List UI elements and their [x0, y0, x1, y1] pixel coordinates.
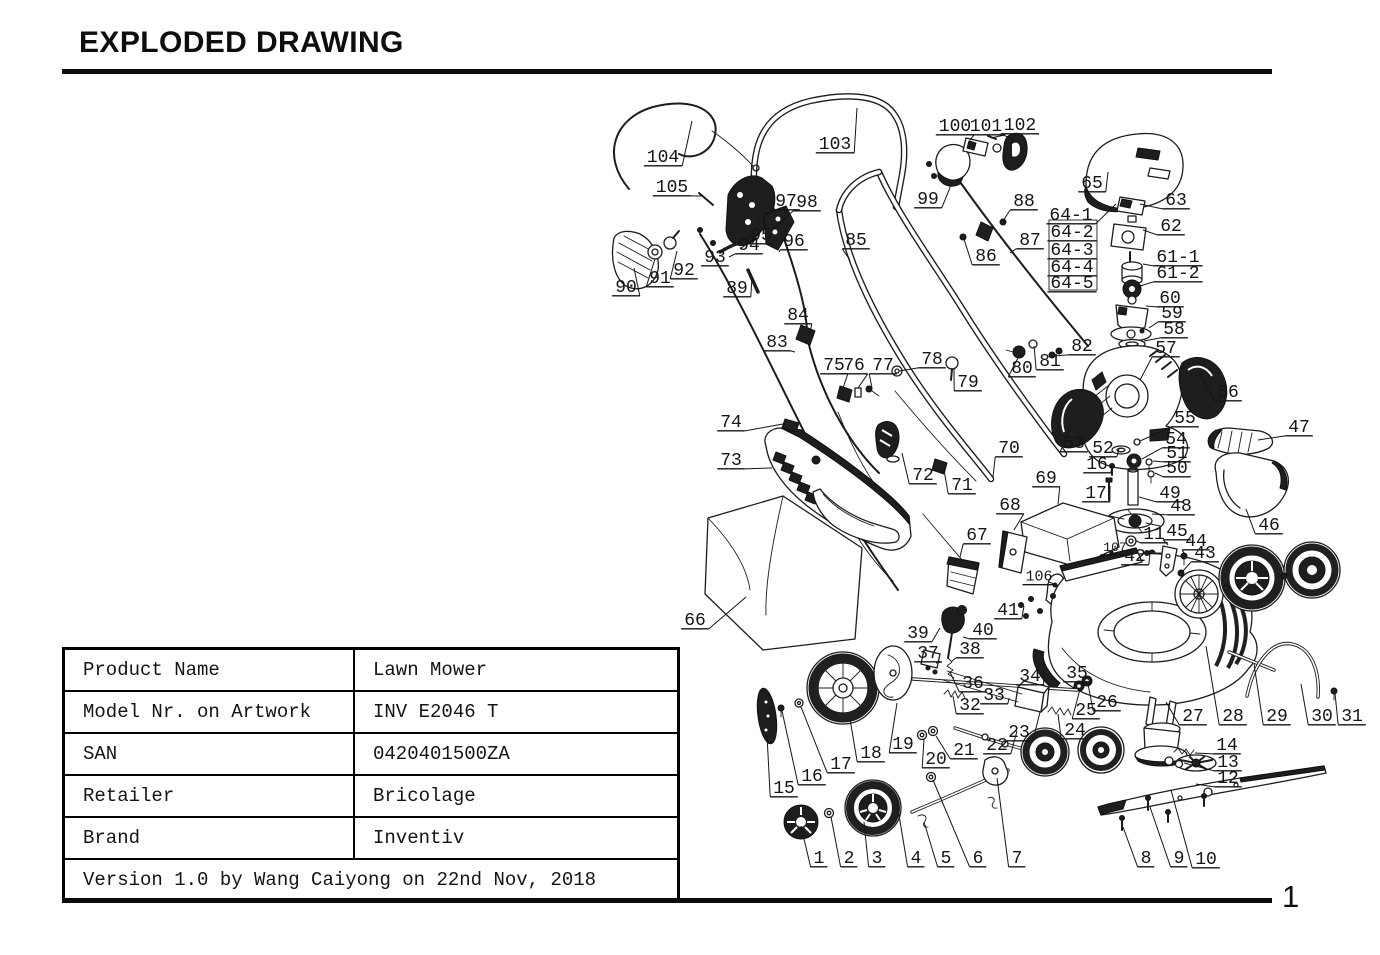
part-label-15: 15	[767, 735, 798, 799]
part-label-58: 58	[1144, 320, 1188, 341]
table-row: Brand Inventiv	[65, 816, 677, 858]
page-number: 1	[1282, 879, 1299, 915]
part-label-7: 7	[997, 778, 1025, 869]
svg-text:31: 31	[1341, 707, 1363, 727]
svg-text:16: 16	[1086, 455, 1108, 475]
svg-text:11: 11	[1143, 525, 1165, 545]
svg-text:48: 48	[1170, 497, 1192, 517]
part-label-31: 31	[1335, 693, 1366, 727]
blade-shapes	[1098, 697, 1326, 830]
svg-text:43: 43	[1194, 544, 1216, 564]
svg-text:77: 77	[872, 356, 894, 376]
svg-text:5: 5	[941, 849, 952, 869]
product-info-table: Product Name Lawn Mower Model Nr. on Art…	[62, 647, 680, 903]
part-label-5: 5	[924, 822, 954, 869]
part-label-71: 71	[944, 470, 976, 496]
svg-text:64-5: 64-5	[1050, 274, 1093, 294]
svg-text:92: 92	[673, 261, 695, 281]
table-row: Retailer Bricolage	[65, 774, 677, 816]
svg-text:35: 35	[1066, 664, 1088, 684]
svg-text:94: 94	[738, 236, 760, 256]
part-label-88: 88	[1003, 192, 1038, 221]
part-label-96: 96	[779, 232, 808, 252]
svg-text:83: 83	[766, 333, 788, 353]
left-wheel-shapes	[754, 646, 937, 745]
svg-text:101: 101	[970, 117, 1002, 137]
svg-text:6: 6	[973, 849, 984, 869]
svg-text:16: 16	[801, 767, 823, 787]
part-label-85: 85	[842, 231, 870, 260]
svg-text:71: 71	[951, 476, 973, 496]
svg-text:75: 75	[823, 356, 845, 376]
part-label-33: 33	[980, 686, 1009, 706]
svg-text:97: 97	[775, 192, 797, 212]
table-footer-row: Version 1.0 by Wang Caiyong on 22nd Nov,…	[65, 858, 677, 900]
svg-text:18: 18	[860, 744, 882, 764]
part-label-83: 83	[763, 333, 795, 353]
part-label-39: 39	[904, 624, 940, 644]
part-label-106: 106	[1023, 569, 1056, 586]
table-row: Model Nr. on Artwork INV E2046 T	[65, 690, 677, 732]
svg-text:23: 23	[1008, 723, 1030, 743]
svg-text:87: 87	[1019, 231, 1041, 251]
svg-text:34: 34	[1019, 667, 1041, 687]
part-label-67: 67	[960, 526, 991, 557]
svg-text:70: 70	[998, 439, 1020, 459]
svg-text:66: 66	[684, 611, 706, 631]
svg-text:37: 37	[917, 644, 939, 664]
svg-text:27: 27	[1182, 707, 1204, 727]
part-label-61-2: 61-2	[1137, 264, 1203, 287]
part-label-35: 35	[1063, 664, 1091, 684]
svg-text:85: 85	[845, 231, 867, 251]
svg-text:28: 28	[1222, 707, 1244, 727]
svg-text:46: 46	[1258, 516, 1280, 536]
svg-text:19: 19	[892, 735, 914, 755]
part-label-8: 8	[1123, 827, 1154, 869]
svg-text:26: 26	[1096, 693, 1118, 713]
svg-text:29: 29	[1266, 707, 1288, 727]
svg-text:69: 69	[1035, 469, 1057, 489]
table-row: SAN 0420401500ZA	[65, 732, 677, 774]
svg-text:84: 84	[787, 306, 809, 326]
part-label-100: 100	[936, 117, 974, 140]
part-label-20: 20	[922, 739, 950, 770]
part-label-38: 38	[952, 640, 984, 661]
part-label-89: 89	[723, 277, 752, 299]
svg-text:76: 76	[843, 356, 865, 376]
part-label-99: 99	[914, 185, 951, 210]
svg-text:55: 55	[1174, 409, 1196, 429]
svg-text:3: 3	[872, 849, 883, 869]
svg-text:79: 79	[957, 373, 979, 393]
svg-text:88: 88	[1013, 192, 1035, 212]
svg-text:9: 9	[1174, 849, 1185, 869]
svg-text:103: 103	[819, 135, 851, 155]
svg-text:74: 74	[720, 413, 742, 433]
part-label-18: 18	[850, 719, 885, 764]
svg-text:33: 33	[983, 686, 1005, 706]
svg-text:62: 62	[1160, 217, 1182, 237]
row-value: INV E2046 T	[355, 692, 677, 732]
svg-text:21: 21	[953, 741, 975, 761]
svg-text:99: 99	[917, 190, 939, 210]
svg-text:82: 82	[1071, 337, 1093, 357]
switch-housing-shapes	[927, 133, 1028, 186]
row-label: Retailer	[65, 776, 355, 816]
svg-text:98: 98	[796, 193, 818, 213]
svg-text:56: 56	[1217, 383, 1239, 403]
svg-text:72: 72	[912, 466, 934, 486]
part-label-103: 103	[816, 108, 857, 155]
part-label-16: 16	[782, 711, 826, 787]
svg-text:104: 104	[647, 148, 679, 168]
svg-text:73: 73	[720, 451, 742, 471]
svg-text:32: 32	[959, 696, 981, 716]
lower-handle-shape	[839, 172, 1064, 479]
svg-text:67: 67	[966, 526, 988, 546]
row-value: Bricolage	[355, 776, 677, 816]
svg-text:81: 81	[1039, 352, 1061, 372]
svg-text:2: 2	[844, 849, 855, 869]
part-label-19: 19	[889, 703, 917, 755]
svg-text:24: 24	[1064, 721, 1086, 741]
svg-text:7: 7	[1012, 849, 1023, 869]
svg-text:40: 40	[972, 621, 994, 641]
svg-text:80: 80	[1011, 359, 1033, 379]
row-label: SAN	[65, 734, 355, 774]
title-rule	[62, 69, 1272, 74]
svg-text:93: 93	[704, 248, 726, 268]
svg-text:15: 15	[773, 779, 795, 799]
svg-text:30: 30	[1311, 707, 1333, 727]
part-label-68: 68	[996, 496, 1024, 530]
right-cover-shapes	[1208, 428, 1288, 517]
svg-text:107: 107	[1103, 540, 1126, 555]
svg-text:42: 42	[1124, 547, 1146, 567]
svg-text:90: 90	[615, 278, 637, 298]
svg-text:68: 68	[999, 496, 1021, 516]
row-value: Inventiv	[355, 818, 677, 858]
svg-text:47: 47	[1288, 418, 1310, 438]
svg-text:8: 8	[1141, 849, 1152, 869]
part-label-107: 107	[1100, 540, 1129, 555]
part-label-72: 72	[902, 453, 937, 486]
svg-text:25: 25	[1075, 701, 1097, 721]
part-label-105: 105	[653, 178, 703, 198]
svg-text:105: 105	[656, 178, 688, 198]
svg-text:100: 100	[939, 117, 971, 137]
part-label-62: 62	[1143, 217, 1185, 237]
part-label-29: 29	[1254, 664, 1291, 727]
svg-text:36: 36	[962, 674, 984, 694]
svg-text:12: 12	[1217, 769, 1239, 789]
svg-text:96: 96	[783, 232, 805, 252]
svg-text:58: 58	[1163, 320, 1185, 340]
part-label-77: 77	[869, 356, 897, 388]
part-label-87: 87	[1010, 231, 1044, 253]
part-label-40: 40	[963, 621, 997, 641]
svg-text:57: 57	[1155, 339, 1177, 359]
part-label-69: 69	[1032, 469, 1060, 504]
part-label-37: 37	[914, 644, 942, 664]
svg-text:39: 39	[907, 624, 929, 644]
table-row: Product Name Lawn Mower	[65, 650, 677, 690]
svg-text:50: 50	[1166, 459, 1188, 479]
svg-text:17: 17	[830, 755, 852, 775]
row-label: Brand	[65, 818, 355, 858]
part-label-79: 79	[954, 368, 982, 393]
svg-text:63: 63	[1165, 191, 1187, 211]
part-label-36: 36	[950, 672, 987, 694]
svg-text:65: 65	[1081, 174, 1103, 194]
part-label-17: 17	[1082, 484, 1110, 504]
row-value: Lawn Mower	[355, 650, 677, 690]
svg-text:10: 10	[1195, 850, 1217, 870]
svg-text:17: 17	[1085, 484, 1107, 504]
svg-text:1: 1	[814, 849, 825, 869]
part-label-64-2: 64-2	[1047, 223, 1096, 243]
part-label-70: 70	[993, 439, 1023, 477]
svg-text:91: 91	[649, 269, 671, 289]
svg-text:38: 38	[959, 640, 981, 660]
part-label-64-5: 64-5	[1047, 274, 1096, 294]
svg-text:20: 20	[925, 750, 947, 770]
part-label-32: 32	[953, 696, 984, 716]
svg-text:41: 41	[997, 601, 1019, 621]
svg-text:22: 22	[986, 736, 1008, 756]
svg-text:89: 89	[726, 279, 748, 299]
svg-text:106: 106	[1025, 569, 1052, 586]
part-label-93: 93	[701, 248, 729, 268]
page-title: EXPLODED DRAWING	[79, 26, 404, 60]
part-label-92: 92	[670, 251, 698, 281]
svg-text:86: 86	[975, 247, 997, 267]
part-label-104: 104	[644, 121, 692, 168]
row-label: Model Nr. on Artwork	[65, 692, 355, 732]
svg-text:61-2: 61-2	[1156, 264, 1199, 284]
svg-text:4: 4	[911, 849, 922, 869]
row-value: 0420401500ZA	[355, 734, 677, 774]
part-label-73: 73	[717, 451, 772, 471]
row-label: Product Name	[65, 650, 355, 690]
part-label-101: 101	[967, 117, 1005, 138]
part-label-86: 86	[964, 239, 1000, 267]
part-label-16: 16	[1083, 455, 1112, 475]
svg-text:78: 78	[921, 350, 943, 370]
footer-rule	[62, 898, 1272, 903]
svg-text:64-2: 64-2	[1050, 223, 1093, 243]
svg-text:102: 102	[1004, 116, 1036, 136]
version-note: Version 1.0 by Wang Caiyong on 22nd Nov,…	[65, 860, 596, 900]
